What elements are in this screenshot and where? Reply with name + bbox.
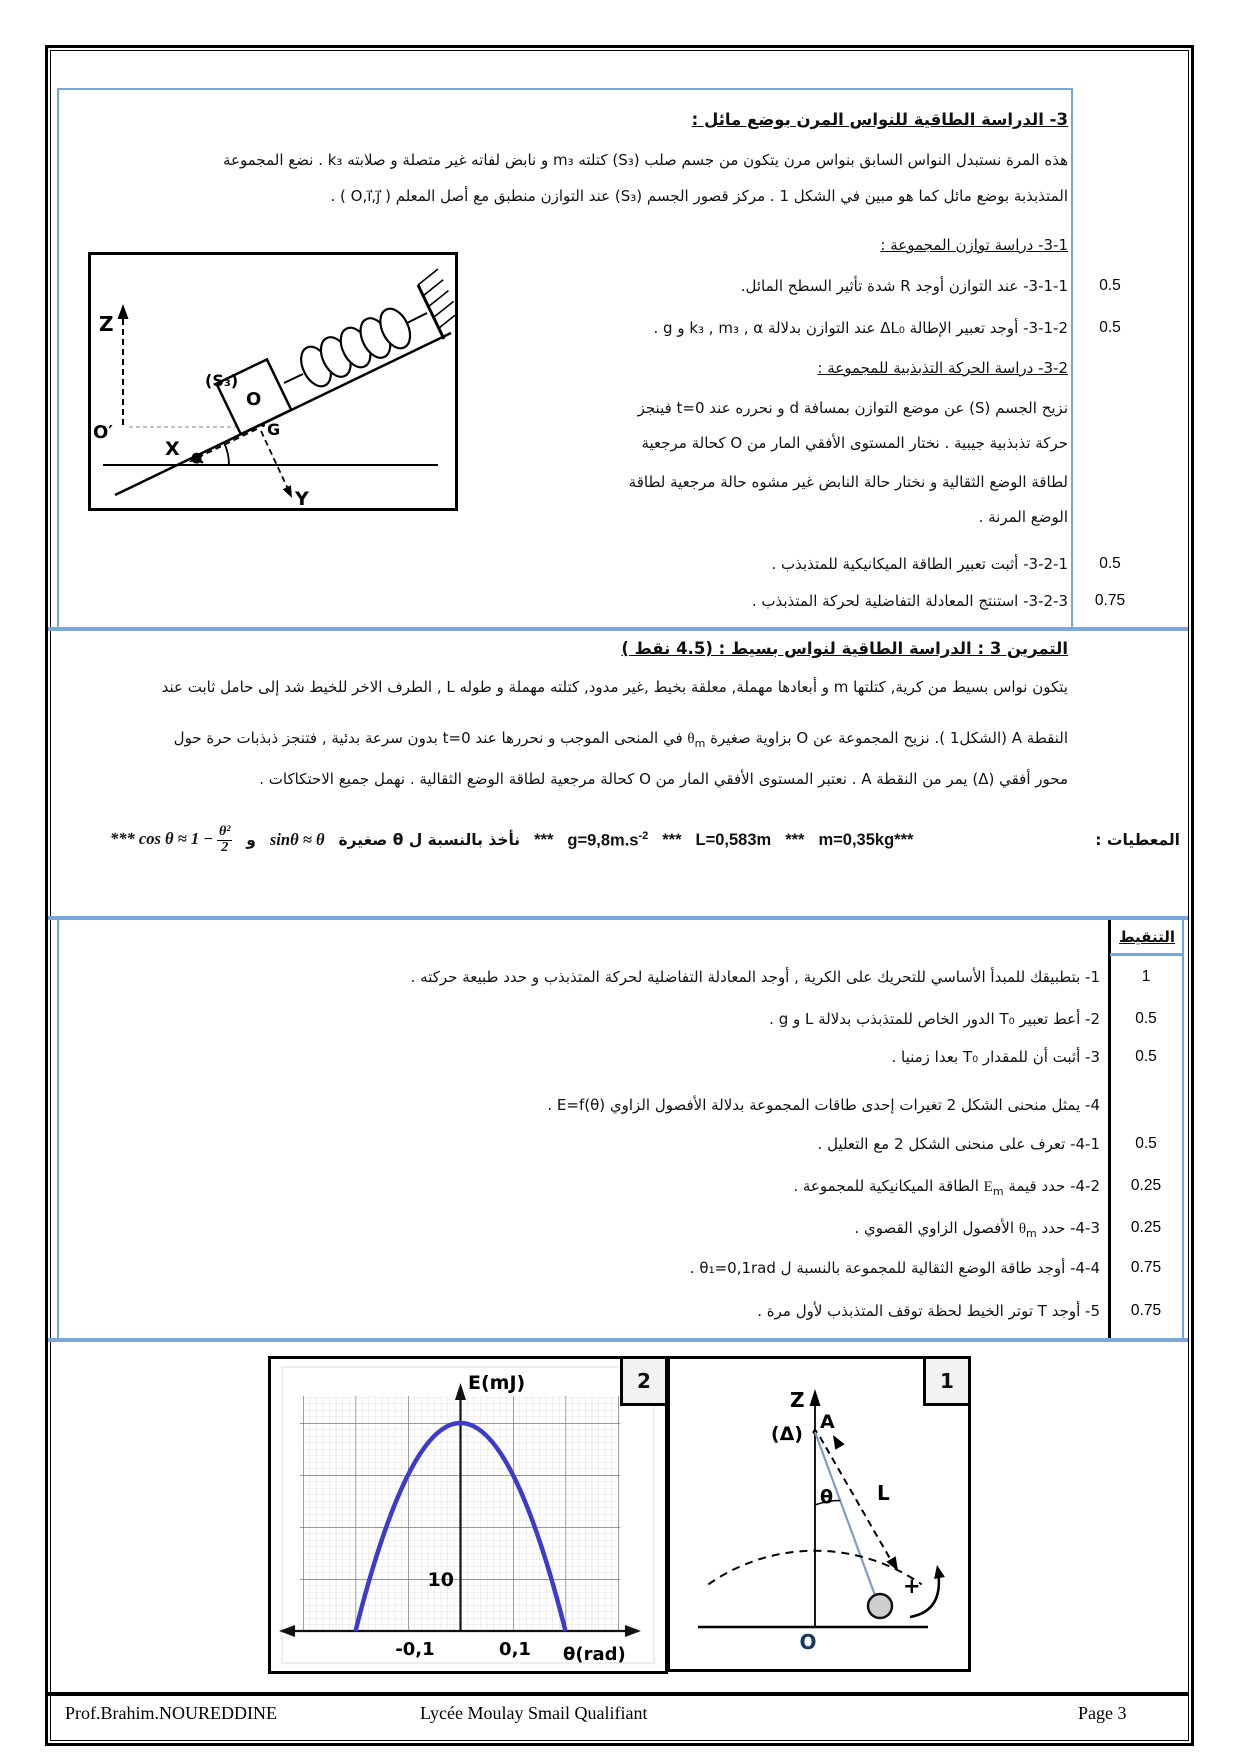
question-3-1-2: 3-1-2- أوجد تعبير الإطالة ΔL₀ عند التواز… bbox=[653, 314, 1068, 342]
question-3-2-1: 3-2-1- أثبت تعبير الطاقة الميكانيكية للم… bbox=[771, 550, 1068, 578]
upper-arrowhead bbox=[833, 1435, 845, 1450]
score-q4-4: 0.75 bbox=[1112, 1254, 1180, 1282]
y-axis-arrowhead bbox=[455, 1383, 466, 1400]
figure1-tag: 1 bbox=[923, 1356, 971, 1406]
score-q3: 0.5 bbox=[1112, 1043, 1180, 1071]
question-text: 4-4- أوجد طاقة الوضع الثقالية للمجموعة ب… bbox=[690, 1259, 1100, 1277]
section3-sub1-heading: 3-1- دراسة توازن المجموعة : bbox=[880, 231, 1068, 259]
section3-para-line2: حركة تذبذبية جيبية . نختار المستوى الأفق… bbox=[641, 429, 1068, 457]
theta-label: θ bbox=[820, 1486, 833, 1508]
exercise3-question-4-2: 4-2- حدد قيمة Em الطاقة الميكانيكية للمج… bbox=[793, 1172, 1100, 1200]
separator-stars: *** bbox=[662, 831, 681, 850]
exam-page: 3- الدراسة الطاقية للنواس المرن بوضع مائ… bbox=[0, 0, 1240, 1754]
question-text-post: الأفصول الزاوي القصوي . bbox=[854, 1219, 1018, 1237]
question-symbol: θ bbox=[1019, 1221, 1026, 1237]
score-q1: 1 bbox=[1112, 963, 1180, 991]
question-text: 5- أوجد T توتر الخيط لحظة توقف المتذبذب … bbox=[757, 1302, 1100, 1320]
theta-squared-over-2-fraction: θ²2 bbox=[217, 825, 232, 855]
separator-stars: *** bbox=[534, 831, 553, 850]
section3-intro-line2: المتذبذبة بوضع مائل كما هو مبين في الشكل… bbox=[330, 182, 1068, 210]
score-q4-2: 0.25 bbox=[1112, 1172, 1180, 1200]
y-axis-line bbox=[261, 431, 288, 489]
x-tick-neg: -0,1 bbox=[395, 1639, 434, 1660]
section3-sub2-heading: 3-2- دراسة الحركة التذبذبية للمجموعة : bbox=[817, 354, 1068, 382]
score-3-2-3: 0.75 bbox=[1082, 587, 1138, 615]
x-axis-left-arrowhead bbox=[279, 1625, 295, 1637]
question-text: 4-3- حدد bbox=[1037, 1219, 1100, 1237]
g-label: G bbox=[267, 420, 280, 439]
separator-stars: *** bbox=[785, 831, 804, 850]
theta-symbol: θ bbox=[687, 731, 694, 747]
question-symbol-sub: m bbox=[1026, 1227, 1037, 1240]
figure2-tag: 2 bbox=[620, 1356, 668, 1406]
o-origin-label: O bbox=[246, 389, 261, 410]
exercise3-question-4-1: 4-1- تعرف على منحنى الشكل 2 مع التعليل . bbox=[818, 1130, 1100, 1158]
gravity-base: g=9,8m.s bbox=[567, 831, 638, 849]
section3-para-line4: الوضع المرنة . bbox=[979, 503, 1068, 531]
z-arrowhead bbox=[810, 1389, 821, 1406]
delta-axis-label: (Δ) bbox=[771, 1423, 803, 1445]
given-data-line: *** cos θ ≈ 1 −θ²2 و sinθ ≈ θ نأخذ بالنس… bbox=[110, 825, 1180, 855]
figure-inclined-spring-box: Z O′ α (S₃) O G X Y bbox=[88, 252, 458, 511]
para-line2-post: في المنحى الموجب و نحررها عند t=0 بدون س… bbox=[174, 729, 688, 747]
x-axis-title: θ(rad) bbox=[563, 1644, 626, 1665]
exercise3-question-5: 5- أوجد T توتر الخيط لحظة توقف المتذبذب … bbox=[757, 1297, 1100, 1325]
given-data-label: المعطيات : bbox=[1095, 831, 1180, 849]
exercise3-question-4: 4- يمثل منحنى الشكل 2 تغيرات إحدى طاقات … bbox=[547, 1091, 1100, 1119]
footer-separator-line bbox=[48, 1692, 1188, 1696]
plus-direction-label: + bbox=[903, 1574, 921, 1598]
small-angle-phrase: نأخذ بالنسبة ل θ صغيرة bbox=[339, 831, 521, 849]
z-axis-arrowhead bbox=[118, 304, 129, 319]
para-line2-pre: النقطة A (الشكل1 ). نزيح المجموعة عن O ب… bbox=[705, 729, 1068, 747]
score-3-1-2: 0.5 bbox=[1082, 314, 1138, 342]
arabic-and: و bbox=[246, 831, 256, 849]
question-text: 1- بتطبيقك للمبدأ الأساسي للتحريك على ال… bbox=[411, 968, 1100, 986]
fraction-denominator: 2 bbox=[217, 840, 232, 856]
footer-school: Lycée Moulay Smail Qualifiant bbox=[420, 1700, 647, 1726]
footer-page-number: Page 3 bbox=[1078, 1700, 1127, 1726]
spring-start-wire bbox=[284, 374, 303, 383]
exercise3-para-line1: يتكون نواس بسيط من كرية, كتلتها m و أبعا… bbox=[162, 673, 1068, 701]
spring-end-wire bbox=[407, 313, 427, 323]
question-symbol-sub: m bbox=[993, 1185, 1004, 1198]
score-3-2-1: 0.5 bbox=[1082, 550, 1138, 578]
exercise3-title: التمرين 3 : الدراسة الطاقية لنواس بسيط :… bbox=[621, 635, 1068, 663]
score-q4-1: 0.5 bbox=[1112, 1130, 1180, 1158]
pendulum-bob bbox=[868, 1594, 892, 1618]
a-label: A bbox=[820, 1411, 835, 1433]
cos-expression: *** cos θ ≈ 1 − bbox=[110, 829, 213, 848]
string-line bbox=[815, 1432, 876, 1598]
y-axis-arrowhead bbox=[283, 485, 292, 498]
exercise3-question-4-3: 4-3- حدد θm الأفصول الزاوي القصوي . bbox=[854, 1214, 1100, 1242]
o-label: O bbox=[799, 1630, 816, 1654]
y-axis-label: Y bbox=[294, 488, 309, 508]
question-text: 4-2- حدد قيمة bbox=[1004, 1177, 1100, 1195]
section3-para-line1: نزيح الجسم (S) عن موضع التوازن بمسافة d … bbox=[638, 394, 1068, 422]
exercise3-para-line2: النقطة A (الشكل1 ). نزيح المجموعة عن O ب… bbox=[174, 724, 1068, 752]
question-3-1-1: 3-1-1- عند التوازن أوجد R شدة تأثير السط… bbox=[741, 272, 1068, 300]
score-q4-3: 0.25 bbox=[1112, 1214, 1180, 1242]
score-3-1-1: 0.5 bbox=[1082, 272, 1138, 300]
exercise3-para-line3: محور أفقي (Δ) يمر من النقطة A . نعتبر ال… bbox=[259, 765, 1068, 793]
question-symbol: E bbox=[984, 1179, 993, 1195]
figure2-energy-curve-box: 2 E(mJ) 10 -0,1 bbox=[268, 1356, 668, 1674]
exercise3-question-1: 1- بتطبيقك للمبدأ الأساسي للتحريك على ال… bbox=[411, 963, 1100, 991]
mass-value: m=0,35kg*** bbox=[818, 831, 913, 850]
sin-approximation: sinθ ≈ θ bbox=[270, 830, 325, 850]
energy-curve-chart: E(mJ) 10 -0,1 0,1 θ(rad) bbox=[271, 1359, 665, 1671]
x-axis-right-arrowhead bbox=[625, 1625, 641, 1637]
length-value: L=0,583m bbox=[696, 831, 772, 850]
grading-column-separator bbox=[1108, 920, 1111, 1338]
s3-label: (S₃) bbox=[205, 371, 238, 390]
inclined-spring-drawing: Z O′ α (S₃) O G X Y bbox=[91, 255, 455, 508]
exercise3-question-3: 3- أثبت أن للمقدار T₀ بعدا زمنيا . bbox=[891, 1043, 1100, 1071]
exercise3-question-4-4: 4-4- أوجد طاقة الوضع الثقالية للمجموعة ب… bbox=[690, 1254, 1100, 1282]
gravity-value: g=9,8m.s-2 bbox=[567, 830, 648, 851]
gravity-exponent: -2 bbox=[638, 830, 648, 842]
z-label: Z bbox=[790, 1388, 805, 1412]
cos-approximation: *** cos θ ≈ 1 −θ²2 bbox=[110, 825, 232, 855]
grading-header: التنقيط bbox=[1110, 920, 1184, 956]
question-3-2-3: 3-2-3- استنتج المعادلة التفاضلية لحركة ا… bbox=[752, 587, 1068, 615]
section-divider-rule-3 bbox=[48, 1338, 1188, 1342]
section3-title: 3- الدراسة الطاقية للنواس المرن بوضع مائ… bbox=[692, 106, 1068, 134]
footer-author: Prof.Brahim.NOUREDDINE bbox=[65, 1700, 277, 1726]
score-q5: 0.75 bbox=[1112, 1297, 1180, 1325]
z-axis-label: Z bbox=[99, 312, 114, 336]
question-text: 4- يمثل منحنى الشكل 2 تغيرات إحدى طاقات … bbox=[547, 1096, 1100, 1114]
curved-arrow-head bbox=[934, 1565, 945, 1579]
x-tick-pos: 0,1 bbox=[499, 1639, 531, 1660]
alpha-angle-arc bbox=[224, 442, 229, 465]
section-divider-rule-1 bbox=[48, 627, 1188, 631]
y-axis-title: E(mJ) bbox=[468, 1372, 525, 1394]
g-point bbox=[261, 423, 265, 427]
length-label: L bbox=[877, 1481, 890, 1505]
question-text-post: الطاقة الميكانيكية للمجموعة . bbox=[793, 1177, 983, 1195]
figure1-pendulum-box: 1 Z (Δ) A L θ + O bbox=[667, 1356, 971, 1672]
score-q2: 0.5 bbox=[1112, 1005, 1180, 1033]
question-text: 3- أثبت أن للمقدار T₀ بعدا زمنيا . bbox=[891, 1048, 1100, 1066]
theta-subscript: m bbox=[695, 737, 706, 750]
y-tick-10: 10 bbox=[428, 1569, 454, 1591]
section3-para-line3: لطاقة الوضع الثقالية و نختار حالة النابض… bbox=[629, 468, 1068, 496]
question-text: 2- أعط تعبير T₀ الدور الخاص للمتذبذب بدل… bbox=[769, 1010, 1100, 1028]
x-axis-label: X bbox=[165, 438, 180, 460]
section3-intro-line1: هذه المرة نستبدل النواس السابق بنواس مرن… bbox=[223, 146, 1068, 174]
o-prime-label: O′ bbox=[93, 422, 113, 443]
question-text: 4-1- تعرف على منحنى الشكل 2 مع التعليل . bbox=[818, 1135, 1100, 1153]
fraction-numerator: θ² bbox=[217, 825, 232, 840]
exercise3-question-2: 2- أعط تعبير T₀ الدور الخاص للمتذبذب بدل… bbox=[769, 1005, 1100, 1033]
